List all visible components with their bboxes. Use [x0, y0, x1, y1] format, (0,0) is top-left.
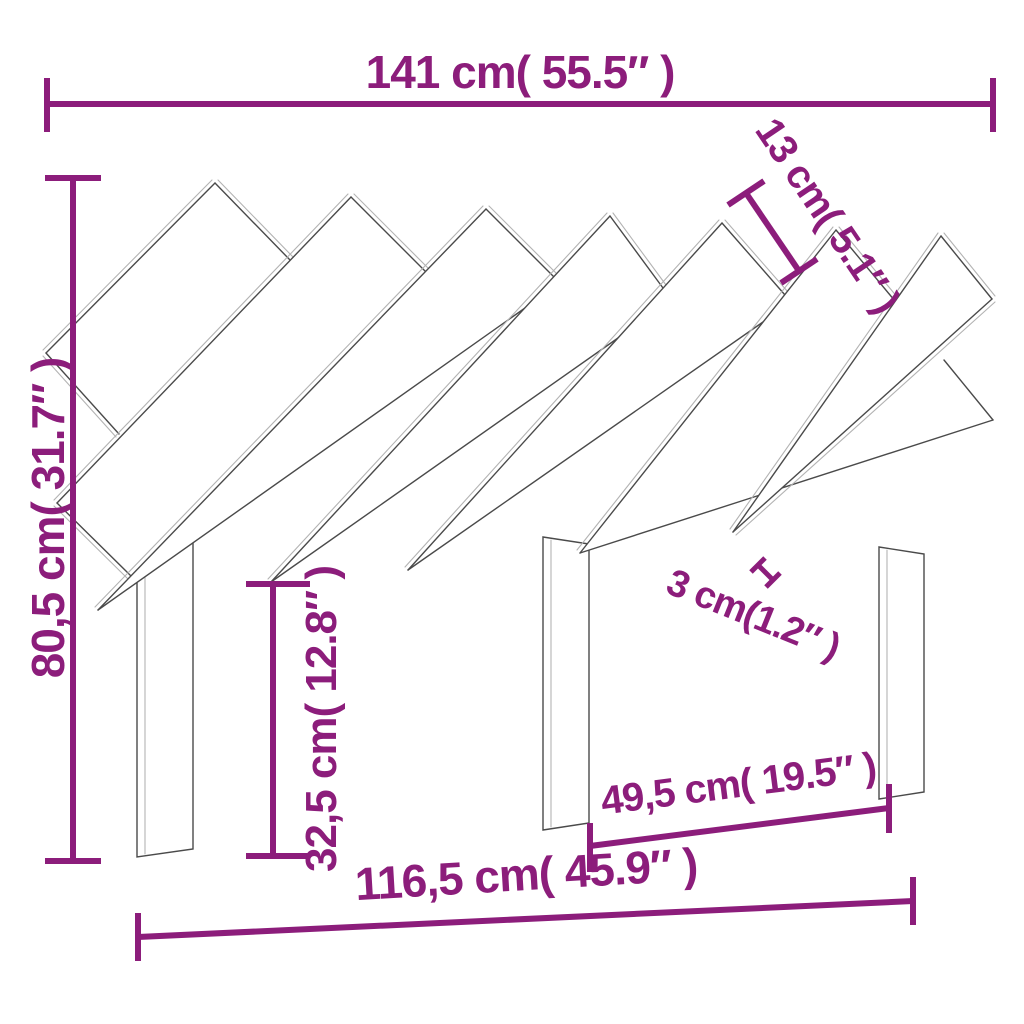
leg-right	[879, 547, 924, 799]
leg-middle	[543, 537, 589, 830]
board-thickness-label: 3 cm(1.2″ )	[661, 561, 846, 668]
diagram-canvas: 141 cm( 55.5″ ) 80,5 cm( 31.7″ ) 13 cm( …	[0, 0, 1024, 1024]
lower-width-label: 116,5 cm( 45.9″ )	[354, 838, 699, 910]
total-height-label: 80,5 cm( 31.7″ )	[22, 358, 74, 679]
dim-total-width: 141 cm( 55.5″ )	[47, 46, 993, 132]
dim-board-thickness: 3 cm(1.2″ )	[661, 558, 846, 669]
leg-height-label: 32,5 cm( 12.8″ )	[297, 566, 346, 872]
total-width-label: 141 cm( 55.5″ )	[366, 46, 675, 98]
headboard-dimension-diagram: 141 cm( 55.5″ ) 80,5 cm( 31.7″ ) 13 cm( …	[0, 0, 1024, 1024]
dim-leg-height: 32,5 cm( 12.8″ )	[246, 566, 346, 872]
